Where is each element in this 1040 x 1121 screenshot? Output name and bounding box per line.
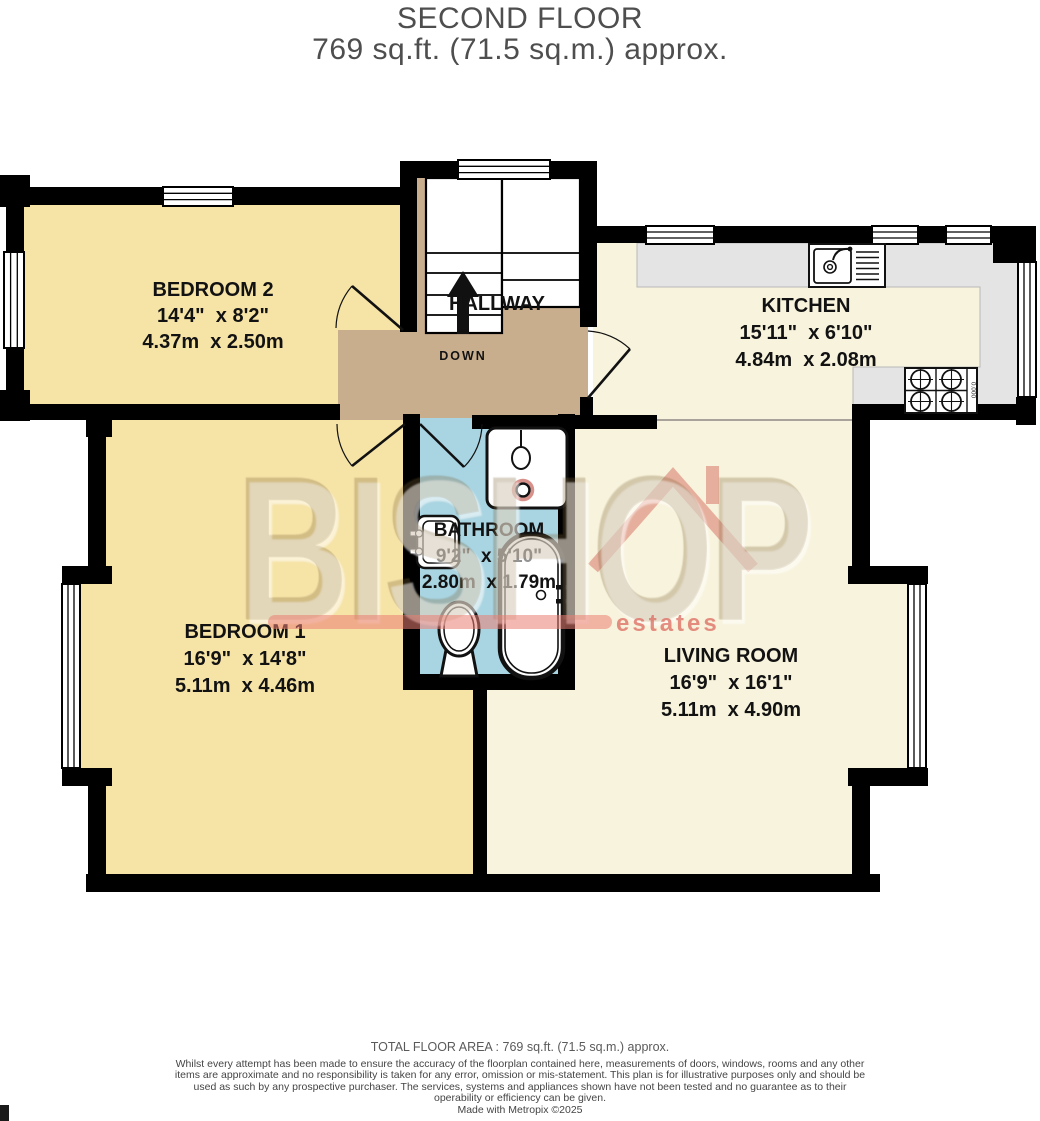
kitchen-hob-icon: 0.000: [905, 368, 977, 413]
kitchen-imperial: 15'11" x 6'10": [739, 322, 872, 344]
bedroom2-label: BEDROOM 2: [152, 279, 273, 301]
stairwell-top-window: [458, 160, 550, 179]
bedroom1-label: BEDROOM 1: [184, 621, 305, 643]
living-room-label: LIVING ROOM: [664, 645, 798, 667]
kitchen-top-window-1: [646, 226, 714, 244]
toilet-icon: [439, 602, 479, 676]
kitchen-metric: 4.84m x 2.08m: [735, 349, 876, 371]
bedroom2-top-window: [163, 187, 233, 206]
bedroom1-imperial: 16'9" x 14'8": [183, 648, 306, 670]
bedroom1-metric: 5.11m x 4.46m: [175, 675, 315, 697]
stairs-down-label: DOWN: [439, 349, 487, 363]
bedroom1-bay-window: [62, 584, 80, 768]
total-floor-area: TOTAL FLOOR AREA : 769 sq.ft. (71.5 sq.m…: [0, 1040, 1040, 1054]
kitchen-label: KITCHEN: [762, 295, 851, 317]
corner-artifact: [0, 1105, 9, 1121]
kitchen-right-window: [1018, 262, 1036, 397]
hob-label: 0.000: [970, 382, 977, 399]
living-room-metric: 5.11m x 4.90m: [661, 699, 801, 721]
living-room-imperial: 16'9" x 16'1": [669, 672, 792, 694]
kitchen-top-window-2: [872, 226, 918, 244]
shower-icon: [487, 428, 567, 508]
hallway-label: HALLWAY: [449, 293, 546, 315]
disclaimer-text: Whilst every attempt has been made to en…: [170, 1059, 870, 1104]
floorplan-canvas: 0.000: [0, 0, 1040, 1121]
living-room-bay-floor: [853, 584, 908, 768]
living-room-bay-window: [908, 584, 926, 768]
kitchen-top-window-3: [946, 226, 991, 244]
bedroom2-metric: 4.37m x 2.50m: [142, 331, 283, 353]
credit-text: Made with Metropix ©2025: [0, 1104, 1040, 1116]
bedroom2-imperial: 14'4" x 8'2": [157, 305, 269, 327]
bedroom2-left-window: [4, 252, 24, 348]
kitchen-sink-icon: [809, 244, 885, 287]
bathroom-imperial: 9'2" x 5'10": [436, 546, 542, 567]
bathroom-label: BATHROOM: [434, 520, 544, 541]
bathroom-metric: 2.80m x 1.79m: [422, 572, 556, 593]
bedroom1-bay-floor: [80, 584, 106, 768]
